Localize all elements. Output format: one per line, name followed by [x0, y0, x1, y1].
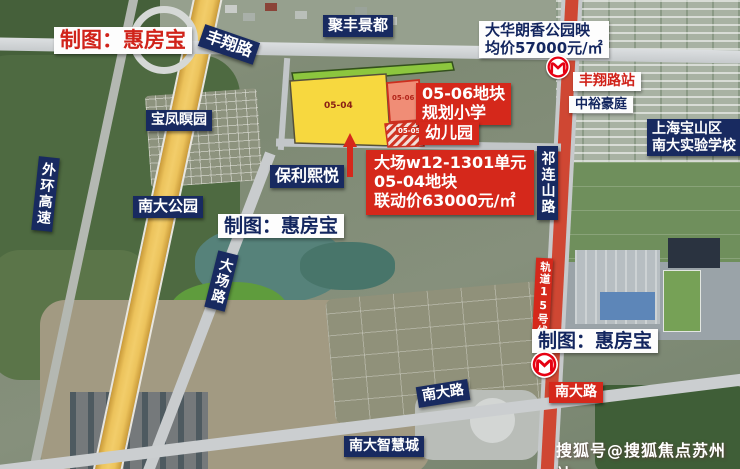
info-box-main-line2: 05-04地块 — [374, 173, 526, 192]
place-label-smartcity: 南大智慧城 — [344, 436, 424, 457]
plot-label-05-04: 05-04 — [324, 101, 353, 111]
road-label-qilian: 祁连山路 — [537, 146, 558, 220]
credit-top-left: 制图：惠房宝 — [54, 27, 192, 54]
place-label-jufengjingdu: 聚丰景都 — [323, 15, 393, 37]
satellite-map: 05-04 05-06 05-05 制图：惠房宝 丰翔路 聚丰景都 大华朗香公园… — [0, 0, 740, 469]
plot-label-05-06: 05-06 — [392, 94, 414, 102]
building-blue-roof — [600, 292, 655, 320]
info-box-0506-school: 05-06地块 规划小学 — [416, 83, 511, 125]
metro-logo-glyph-bottom — [531, 351, 558, 378]
school-line1: 上海宝山区 — [652, 121, 736, 138]
credit-middle: 制图：惠房宝 — [218, 214, 344, 238]
plot-green-strip — [292, 62, 454, 84]
place-label-zhongyu: 中裕豪庭 — [569, 96, 633, 113]
metro-logo-icon — [546, 55, 570, 79]
info-box-main-line1: 大场w12-1301单元 — [374, 154, 526, 173]
terrain-buildings-speckle — [225, 5, 237, 13]
watermark-sohu: 搜狐号@搜狐焦点苏州站 — [556, 437, 740, 469]
info-box-0506-line2: 规划小学 — [422, 104, 505, 123]
plots-west-road — [278, 58, 290, 150]
road-label-nanda-red: 南大路 — [549, 382, 603, 403]
school-line2: 南大实验学校 — [652, 138, 736, 155]
metro-logo-glyph — [546, 55, 570, 79]
terrain-pond-small — [300, 242, 395, 290]
price-box-dahua-line1: 大华朗香公园映 — [485, 22, 603, 40]
place-label-baofeng: 宝凤瞑园 — [146, 110, 212, 131]
terrain-outlined-field — [663, 270, 701, 332]
metro-logo-icon-bottom — [531, 351, 558, 378]
price-box-dahua-line2: 均价57000元/㎡ — [485, 40, 603, 58]
info-box-main-line3: 联动价63000元/㎡ — [374, 192, 526, 211]
place-label-school: 上海宝山区 南大实验学校 — [647, 119, 740, 156]
price-box-dahua: 大华朗香公园映 均价57000元/㎡ — [479, 21, 609, 58]
info-box-0506-line1: 05-06地块 — [422, 85, 505, 104]
place-label-baoli: 保利熙悦 — [270, 165, 344, 188]
info-box-kindergarten: 幼儿园 — [419, 122, 479, 145]
building-dark-roof — [668, 238, 720, 268]
place-label-nanda-park: 南大公园 — [133, 196, 203, 218]
info-box-main-plot: 大场w12-1301单元 05-04地块 联动价63000元/㎡ — [366, 150, 534, 215]
credit-right: 制图：惠房宝 — [532, 329, 658, 353]
station-label-fengxiang: 丰翔路站 — [573, 72, 641, 91]
